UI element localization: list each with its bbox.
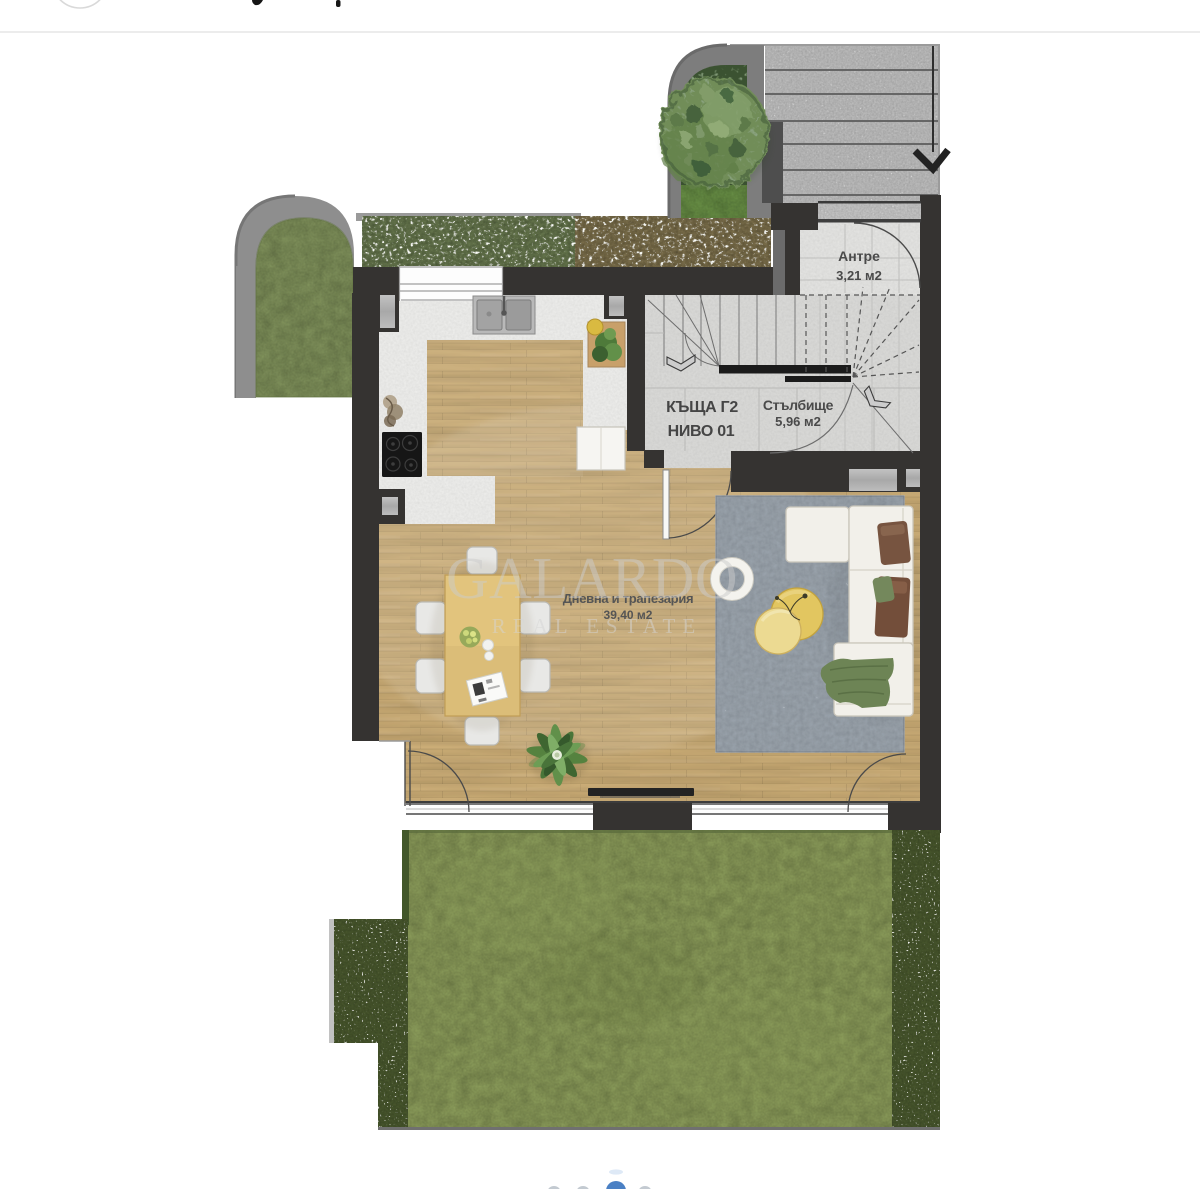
svg-text:Стълбище: Стълбище <box>763 397 834 413</box>
svg-text:REAL ESTATE: REAL ESTATE <box>492 614 702 638</box>
svg-text:GALARDO: GALARDO <box>446 545 738 611</box>
svg-text:КЪЩА Г2: КЪЩА Г2 <box>666 399 738 416</box>
svg-text:Антре: Антре <box>838 248 880 264</box>
svg-text:НИВО 01: НИВО 01 <box>668 423 735 440</box>
svg-text:3,21 м2: 3,21 м2 <box>836 268 882 283</box>
svg-text:5,96 м2: 5,96 м2 <box>775 414 821 429</box>
